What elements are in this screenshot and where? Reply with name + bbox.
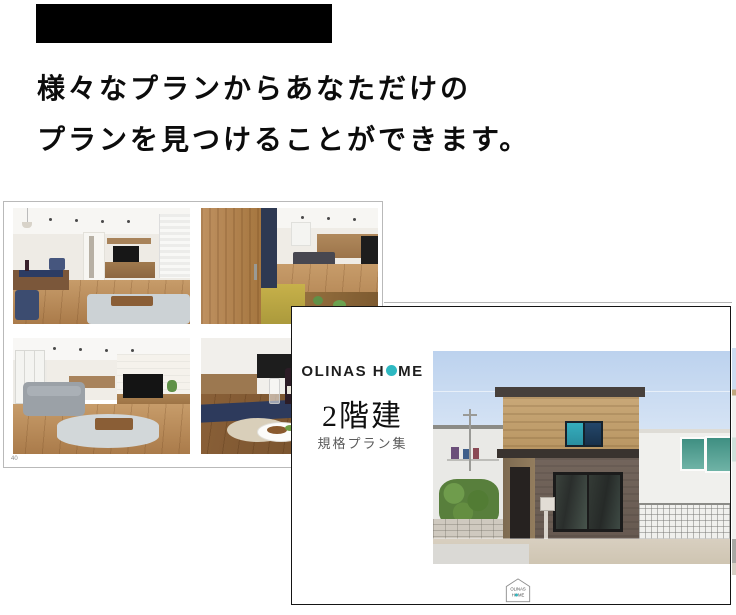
house-exterior-photo <box>433 351 730 564</box>
decor-shape <box>27 386 81 396</box>
brand-text-pre: OLINAS H <box>301 363 385 380</box>
cover-subtitle: 規格プラン集 <box>292 433 433 452</box>
decor-shape <box>540 497 555 511</box>
interior-photo-living-dining <box>13 208 190 324</box>
front-door-shape <box>510 467 530 541</box>
decor-shape <box>269 378 280 404</box>
decor-shape <box>567 423 583 445</box>
seal-dot-icon <box>515 594 518 597</box>
brand-seal-house-icon: OLINAS HOME <box>504 577 532 603</box>
cover-text-column: OLINAS HME 2階建 規格プラン集 <box>292 307 433 604</box>
decor-shape <box>49 218 52 221</box>
page-number: 40 <box>11 456 18 462</box>
tv-shape <box>113 246 139 262</box>
decor-shape <box>107 238 151 244</box>
wood-door-shape <box>201 208 261 324</box>
decor-shape <box>111 296 153 306</box>
decor-shape <box>53 347 56 350</box>
page-section: 様々なプランからあなただけの プランを見つけることができます。 <box>0 0 736 615</box>
brochure-cover-image[interactable]: OLINAS HME 2階建 規格プラン集 <box>291 306 731 605</box>
decor-shape <box>159 214 190 278</box>
decor-shape <box>433 544 529 564</box>
heading-line-1: 様々なプランからあなただけの <box>37 63 530 114</box>
decor-shape <box>301 216 304 219</box>
decor-shape <box>463 414 477 416</box>
heading-line-2: プランを見つけることができます。 <box>37 114 530 165</box>
decor-shape <box>705 436 730 473</box>
tv-shape <box>361 236 378 264</box>
seal-text-line1: OLINAS <box>510 587 526 592</box>
decor-shape <box>95 418 133 430</box>
interior-photo-sofa-living <box>13 338 190 454</box>
brand-logo: OLINAS HME <box>292 363 433 380</box>
brand-text-post: ME <box>398 363 424 380</box>
section-heading: 様々なプランからあなただけの プランを見つけることができます。 <box>37 63 530 165</box>
decor-shape <box>167 380 177 392</box>
decor-shape <box>680 437 706 471</box>
decor-shape <box>89 236 94 278</box>
main-house-roof <box>495 387 645 397</box>
decor-shape <box>447 459 499 461</box>
decor-shape <box>25 260 29 271</box>
section-title-bar <box>36 4 332 43</box>
decor-shape <box>254 264 257 280</box>
decor-shape <box>556 475 587 529</box>
decor-shape <box>313 296 323 305</box>
decor-shape <box>451 447 459 459</box>
brand-dot-icon <box>386 365 397 376</box>
tv-shape <box>123 374 163 398</box>
decor-shape <box>433 538 730 539</box>
photo-bleed-strip <box>732 306 736 605</box>
chair-shape <box>15 290 39 320</box>
decor-shape <box>22 222 32 228</box>
decor-shape <box>83 232 105 282</box>
cover-title: 2階建 <box>292 391 433 435</box>
back-sheet-edge <box>384 302 732 303</box>
decor-shape <box>261 208 277 288</box>
decor-shape <box>497 449 645 458</box>
decor-shape <box>105 262 155 278</box>
decor-shape <box>589 475 620 529</box>
decor-shape <box>201 374 257 394</box>
decor-shape <box>19 270 63 277</box>
decor-shape <box>585 423 601 445</box>
decor-shape <box>473 448 479 459</box>
decor-shape <box>267 426 287 434</box>
decor-shape <box>469 409 471 471</box>
decor-shape <box>49 258 65 270</box>
seal-text-line2: HOME <box>512 592 525 597</box>
decor-shape <box>291 222 311 246</box>
